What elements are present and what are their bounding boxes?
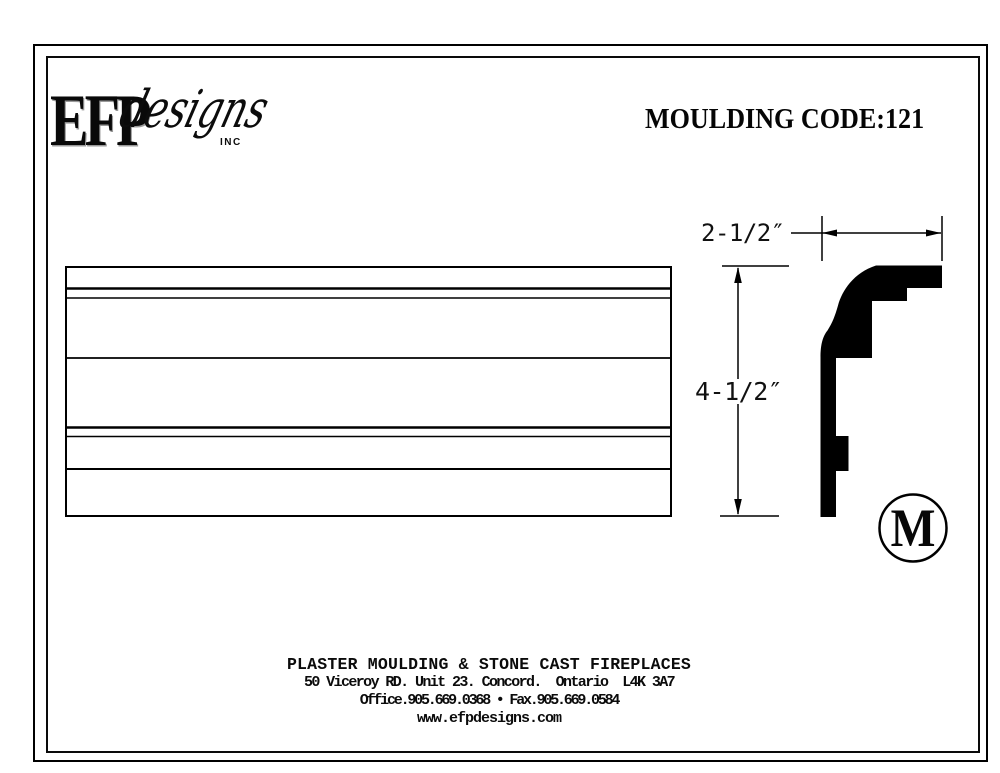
arrowhead-up-icon <box>734 267 742 283</box>
arrowhead-down-icon <box>734 499 742 515</box>
width-dimension-label: 2-1/2″ <box>701 221 785 245</box>
arrowhead-left-icon <box>822 230 837 237</box>
arrowhead-right-icon <box>926 230 941 237</box>
width-dimension <box>791 216 942 261</box>
footer-website: www.efpdesigns.com <box>0 710 978 728</box>
height-dimension-label: 4-1/2″ <box>692 379 785 404</box>
moulding-spec-sheet: EFP designs INC MOULDING CODE:121 <box>0 0 1000 773</box>
footer-contact-block: PLASTER MOULDING & STONE CAST FIREPLACES… <box>0 655 978 728</box>
profile-section-silhouette <box>821 266 943 518</box>
moulding-symbol-letter: M <box>878 495 948 561</box>
front-view <box>66 267 671 516</box>
footer-company-line: PLASTER MOULDING & STONE CAST FIREPLACES <box>0 655 978 674</box>
footer-phone-line: Office.905.669.0368 • Fax.905.669.0584 <box>0 692 978 710</box>
footer-address-line: 50 Viceroy RD. Unit 23. Concord. Ontario… <box>0 674 978 692</box>
